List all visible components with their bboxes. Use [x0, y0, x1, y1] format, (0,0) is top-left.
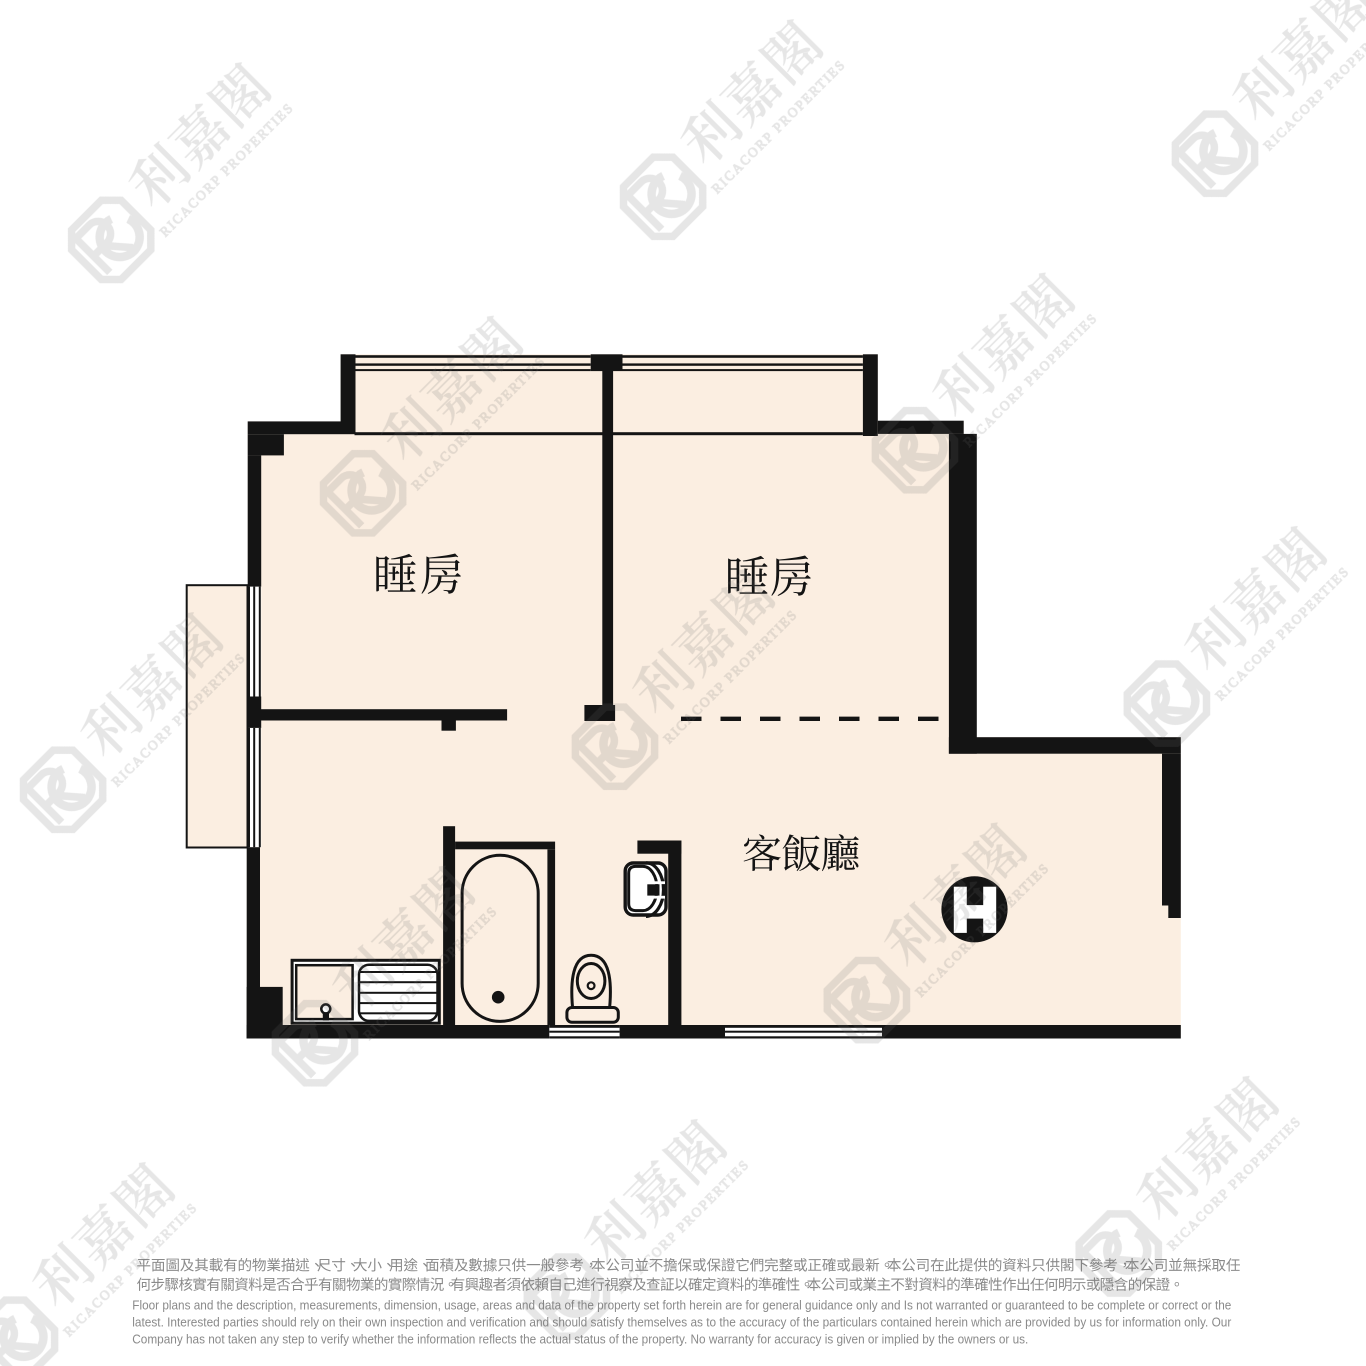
svg-text:latest. Interested parties sho: latest. Interested parties should rely o… [132, 1315, 1232, 1330]
svg-text:Floor plans and the descriptio: Floor plans and the description, measure… [132, 1298, 1231, 1313]
